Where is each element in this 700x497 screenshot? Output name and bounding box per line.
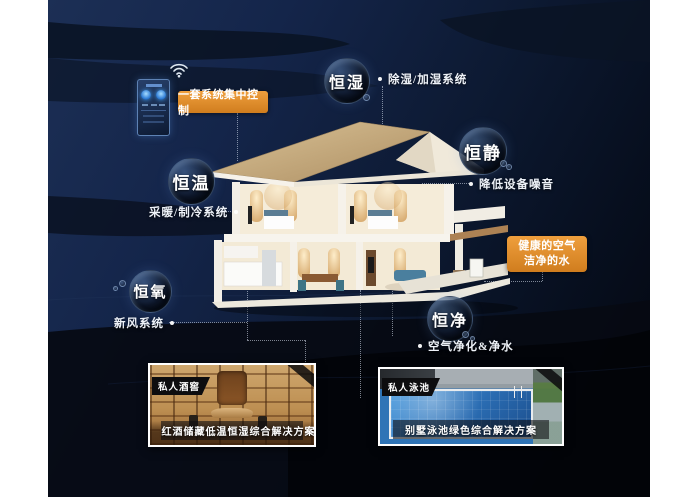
panel-readout bbox=[159, 104, 165, 106]
pool-ladder bbox=[514, 386, 522, 398]
panel-readout bbox=[142, 104, 148, 106]
panel-dial-left bbox=[141, 90, 151, 100]
label-air-water-purification: 空气净化&净水 bbox=[418, 338, 514, 354]
connector-dot bbox=[378, 77, 382, 81]
bubble-constant-quiet: 恒静 bbox=[459, 127, 507, 175]
mini-bubble bbox=[462, 331, 469, 338]
connector-dot bbox=[170, 321, 174, 325]
bubble-constant-temperature: 恒温 bbox=[168, 158, 215, 205]
healthy-air-water-box: 健康的空气 洁净的水 bbox=[507, 236, 587, 272]
infographic-canvas: 一套系统集中控制 健康的空气 洁净的水 恒湿 恒静 恒温 恒氧 恒净 除湿/加湿… bbox=[0, 0, 700, 497]
panel-title-bar bbox=[146, 84, 162, 87]
bubble-constant-oxygen: 恒氧 bbox=[129, 270, 172, 313]
label-noise-reduction: 降低设备噪音 bbox=[469, 176, 554, 192]
wifi-icon bbox=[169, 61, 189, 78]
connector-to-wine-h bbox=[247, 340, 305, 341]
wine-cellar-caption: 红酒储藏低温恒湿综合解决方案 bbox=[161, 421, 302, 440]
wine-cellar-tag: 私人酒窖 bbox=[152, 377, 210, 395]
label-text: 采暖/制冷系统 bbox=[149, 204, 228, 220]
panel-dial-right bbox=[156, 90, 166, 100]
wine-cellar-arch bbox=[217, 371, 247, 405]
connector-dot bbox=[418, 344, 422, 348]
connector-dot bbox=[234, 210, 238, 214]
central-control-banner: 一套系统集中控制 bbox=[178, 91, 268, 113]
label-heating-cooling-system: 采暖/制冷系统 bbox=[149, 204, 238, 220]
dark-stage: 一套系统集中控制 健康的空气 洁净的水 恒湿 恒静 恒温 恒氧 恒净 除湿/加湿… bbox=[48, 0, 650, 497]
label-text: 空气净化&净水 bbox=[428, 338, 514, 354]
panel-row bbox=[143, 121, 164, 123]
label-text: 降低设备噪音 bbox=[479, 176, 554, 192]
wine-cellar-table bbox=[211, 408, 254, 418]
label-text: 除湿/加湿系统 bbox=[388, 71, 467, 87]
photo-wine-cellar: 私人酒窖 红酒储藏低温恒湿综合解决方案 bbox=[148, 363, 316, 447]
panel-divider bbox=[141, 110, 166, 111]
label-text: 新风系统 bbox=[114, 315, 164, 331]
panel-row bbox=[143, 115, 164, 117]
clean-water-line: 洁净的水 bbox=[524, 254, 570, 269]
connector-dot bbox=[469, 182, 473, 186]
smart-control-panel bbox=[137, 79, 170, 136]
connector-to-wine-v bbox=[305, 340, 306, 362]
mini-bubble bbox=[506, 164, 512, 170]
pool-caption: 别墅泳池绿色综合解决方案 bbox=[393, 420, 550, 439]
photo-private-pool: 私人泳池 别墅泳池绿色综合解决方案 bbox=[378, 367, 564, 446]
connector-fresh-house bbox=[169, 322, 247, 323]
mini-bubble bbox=[113, 286, 118, 291]
pool-tag: 私人泳池 bbox=[382, 378, 440, 396]
healthy-air-line: 健康的空气 bbox=[518, 239, 576, 254]
label-dehumidify-system: 除湿/加湿系统 bbox=[378, 71, 467, 87]
panel-readout bbox=[151, 104, 157, 106]
mini-bubble bbox=[363, 94, 370, 101]
mini-bubble bbox=[119, 280, 126, 287]
connector-hbox-v bbox=[542, 271, 543, 281]
label-fresh-air-system: 新风系统 bbox=[114, 315, 174, 331]
